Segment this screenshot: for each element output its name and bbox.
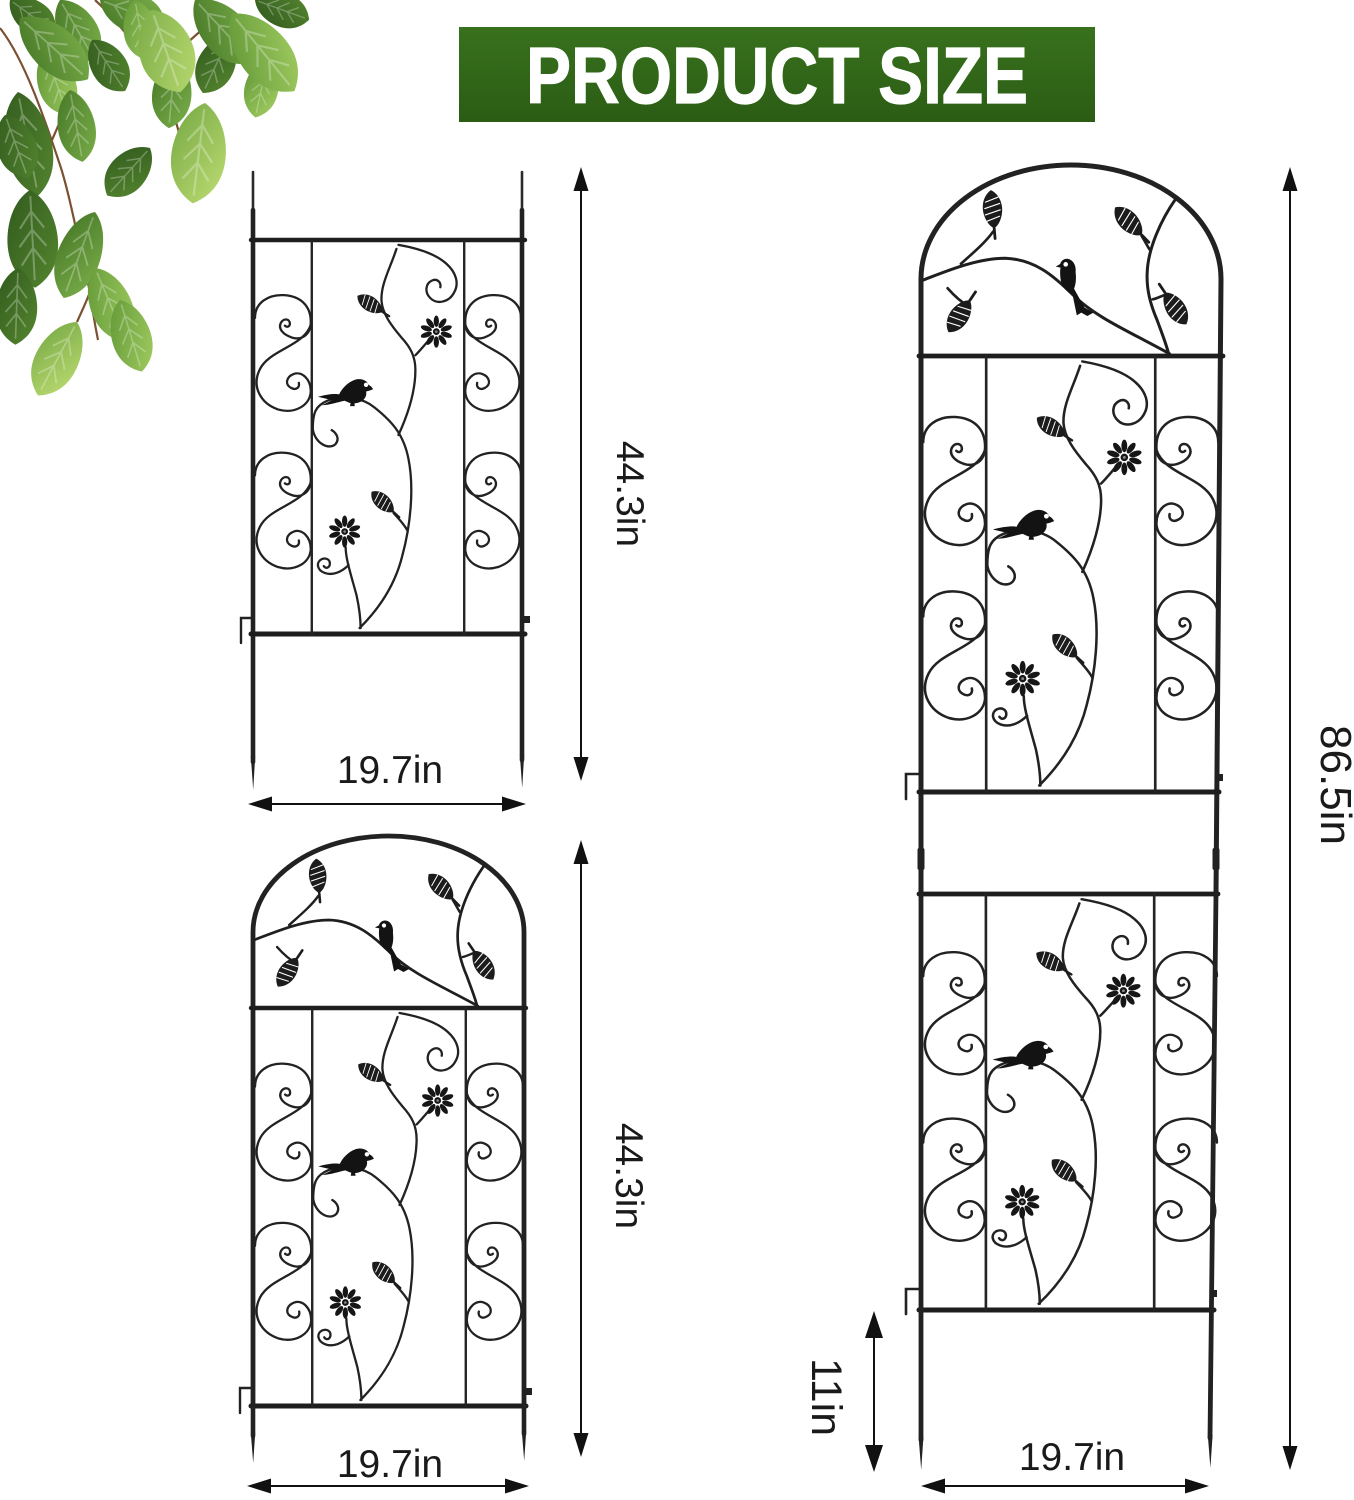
svg-text:44.3in: 44.3in	[607, 1123, 650, 1229]
svg-text:PRODUCT SIZE: PRODUCT SIZE	[526, 31, 1028, 120]
svg-text:44.3in: 44.3in	[608, 441, 651, 547]
svg-text:19.7in: 19.7in	[337, 749, 443, 792]
svg-text:19.7in: 19.7in	[1019, 1436, 1125, 1479]
svg-text:86.5in: 86.5in	[1311, 725, 1354, 845]
svg-text:19.7in: 19.7in	[337, 1443, 443, 1486]
svg-text:11in: 11in	[802, 1358, 850, 1436]
